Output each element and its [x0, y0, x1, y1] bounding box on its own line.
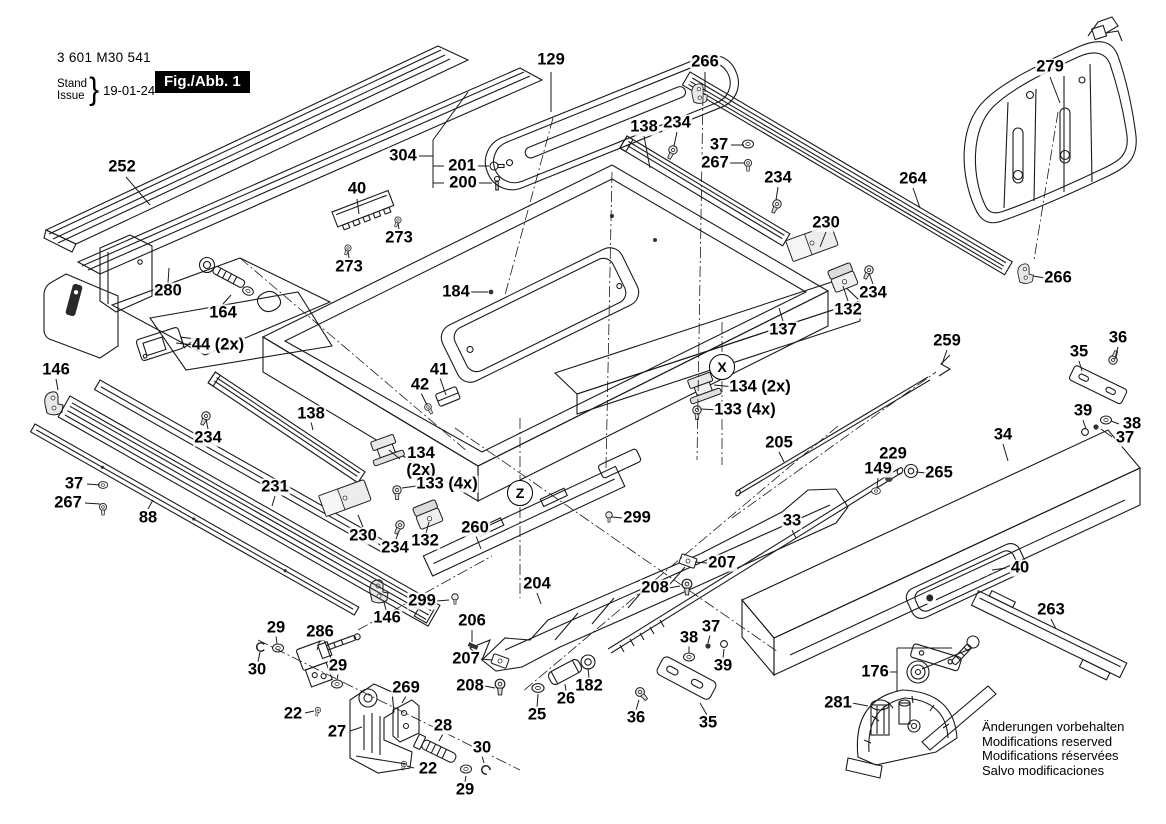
detail-marker-z: Z [507, 480, 533, 506]
part-callout: 299 [622, 510, 652, 527]
part-callout: 27 [327, 724, 347, 741]
part-callout: 205 [764, 435, 794, 452]
part-callout: 39 [713, 658, 733, 675]
part-callout: 234 [662, 115, 692, 132]
part-callout: 37 [64, 476, 84, 493]
part-callout: 204 [522, 576, 552, 593]
part-callout: 33 [782, 513, 802, 530]
part-callout: 30 [247, 662, 267, 679]
part-callout: 29 [455, 782, 475, 799]
note-line: Änderungen vorbehalten [982, 720, 1124, 735]
part-callout: 22 [418, 761, 438, 778]
part-callout: 176 [860, 664, 890, 681]
part-callout: 207 [707, 555, 737, 572]
part-callout: 208 [455, 678, 485, 695]
part-callout: 133 (4x) [713, 402, 776, 419]
note-line: Salvo modificaciones [982, 764, 1124, 779]
part-callout: 269 [391, 680, 421, 697]
part-callout: 41 [429, 362, 449, 379]
part-callout: 234 [193, 430, 223, 447]
note-line: Modifications réservées [982, 749, 1124, 764]
part-callout: 164 [208, 305, 238, 322]
part-callout: 40 [1010, 560, 1030, 577]
part-callout: 25 [527, 707, 547, 724]
part-callout: 230 [811, 215, 841, 232]
part-callout: 286 [305, 624, 335, 641]
note-line: Modifications reserved [982, 735, 1124, 750]
part-callout: 22 [283, 706, 303, 723]
part-callout: 260 [460, 520, 490, 537]
part-callout: 280 [153, 283, 183, 300]
part-callout: 206 [457, 613, 487, 630]
part-callout: 37 [701, 619, 721, 636]
part-callout: 37 [1115, 430, 1135, 447]
part-callout: 28 [433, 718, 453, 735]
part-callout: 30 [472, 740, 492, 757]
part-callout: 299 [407, 593, 437, 610]
part-callout: 36 [626, 710, 646, 727]
part-callout: 35 [698, 715, 718, 732]
part-callout: 234 [380, 540, 410, 557]
issue-label: Issue [57, 90, 87, 102]
part-callout: 259 [932, 333, 962, 350]
part-callout: 252 [107, 159, 137, 176]
stand-issue-row: Stand Issue } 19-01-24 [57, 73, 155, 107]
part-callout: 146 [372, 610, 402, 627]
part-callout: 207 [451, 651, 481, 668]
modification-notes: Änderungen vorbehaltenModifications rese… [982, 720, 1124, 778]
part-callout: 146 [41, 362, 71, 379]
part-callout: 182 [574, 678, 604, 695]
brace-glyph: } [89, 72, 99, 108]
part-callout: 149 [863, 461, 893, 478]
part-callout: 133 (4x) [415, 476, 478, 493]
part-callout: 137 [768, 322, 798, 339]
part-callout: 36 [1108, 330, 1128, 347]
part-callout: 281 [823, 695, 853, 712]
part-callout: 88 [138, 510, 158, 527]
stand-label: Stand [57, 78, 87, 90]
part-callout: 266 [690, 54, 720, 71]
parts-diagram-page: BOSCH [0, 0, 1166, 824]
part-callout: 26 [556, 691, 576, 708]
callout-layer: 2521292661382343726727926423423026623413… [0, 0, 1166, 824]
part-callout: 263 [1036, 602, 1066, 619]
part-callout: 264 [898, 171, 928, 188]
part-callout: 35 [1069, 344, 1089, 361]
part-callout: 39 [1073, 403, 1093, 420]
part-callout: 134 (2x) [728, 379, 791, 396]
figure-label: Fig./Abb. 1 [155, 71, 250, 93]
part-callout: 267 [700, 155, 730, 172]
part-callout: 230 [348, 528, 378, 545]
part-callout: 132 [833, 302, 863, 319]
part-callout: 273 [334, 259, 364, 276]
part-callout: 40 [347, 181, 367, 198]
part-callout: 129 [536, 52, 566, 69]
title-block: 3 601 M30 541 Stand Issue } 19-01-24 Fig… [57, 50, 155, 107]
part-number: 3 601 M30 541 [57, 50, 155, 65]
part-callout: 132 [410, 533, 440, 550]
part-callout: 267 [53, 495, 83, 512]
part-callout: 304 [388, 148, 418, 165]
part-callout: 273 [384, 230, 414, 247]
detail-marker-x: X [709, 354, 735, 380]
part-callout: 29 [266, 620, 286, 637]
part-callout: 265 [924, 465, 954, 482]
issue-date: 19-01-24 [103, 83, 155, 98]
part-callout: 266 [1043, 270, 1073, 287]
part-callout: 37 [709, 137, 729, 154]
part-callout: 234 [763, 170, 793, 187]
part-callout: 138 [296, 406, 326, 423]
part-callout: 29 [328, 658, 348, 675]
part-callout: 138 [629, 119, 659, 136]
part-callout: 279 [1035, 59, 1065, 76]
part-callout: 231 [260, 479, 290, 496]
part-callout: 200 [448, 175, 478, 192]
part-callout: 42 [410, 377, 430, 394]
part-callout: 201 [447, 158, 477, 175]
part-callout: 34 [993, 427, 1013, 444]
part-callout: 44 (2x) [191, 337, 245, 354]
part-callout: 208 [640, 580, 670, 597]
part-callout: 184 [441, 284, 471, 301]
part-callout: 234 [858, 285, 888, 302]
part-callout: 38 [679, 630, 699, 647]
